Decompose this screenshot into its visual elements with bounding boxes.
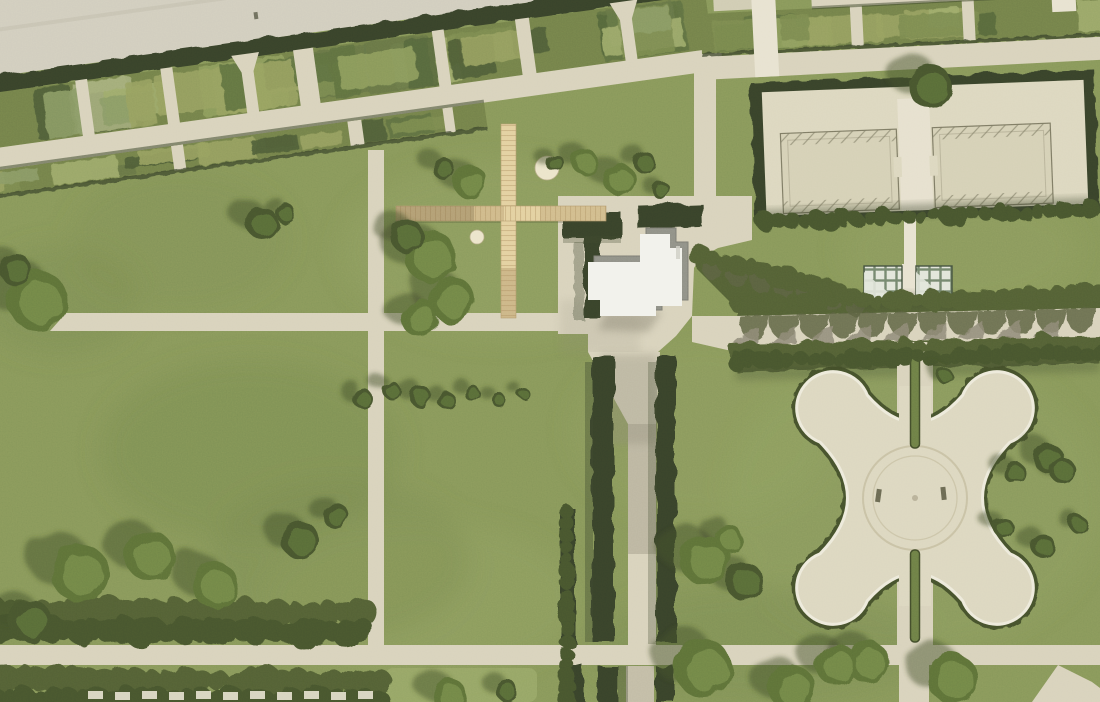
photo-grain-overlay — [0, 0, 1100, 702]
site-plan-canvas — [0, 0, 1100, 702]
aerial-site-plan — [0, 0, 1100, 702]
